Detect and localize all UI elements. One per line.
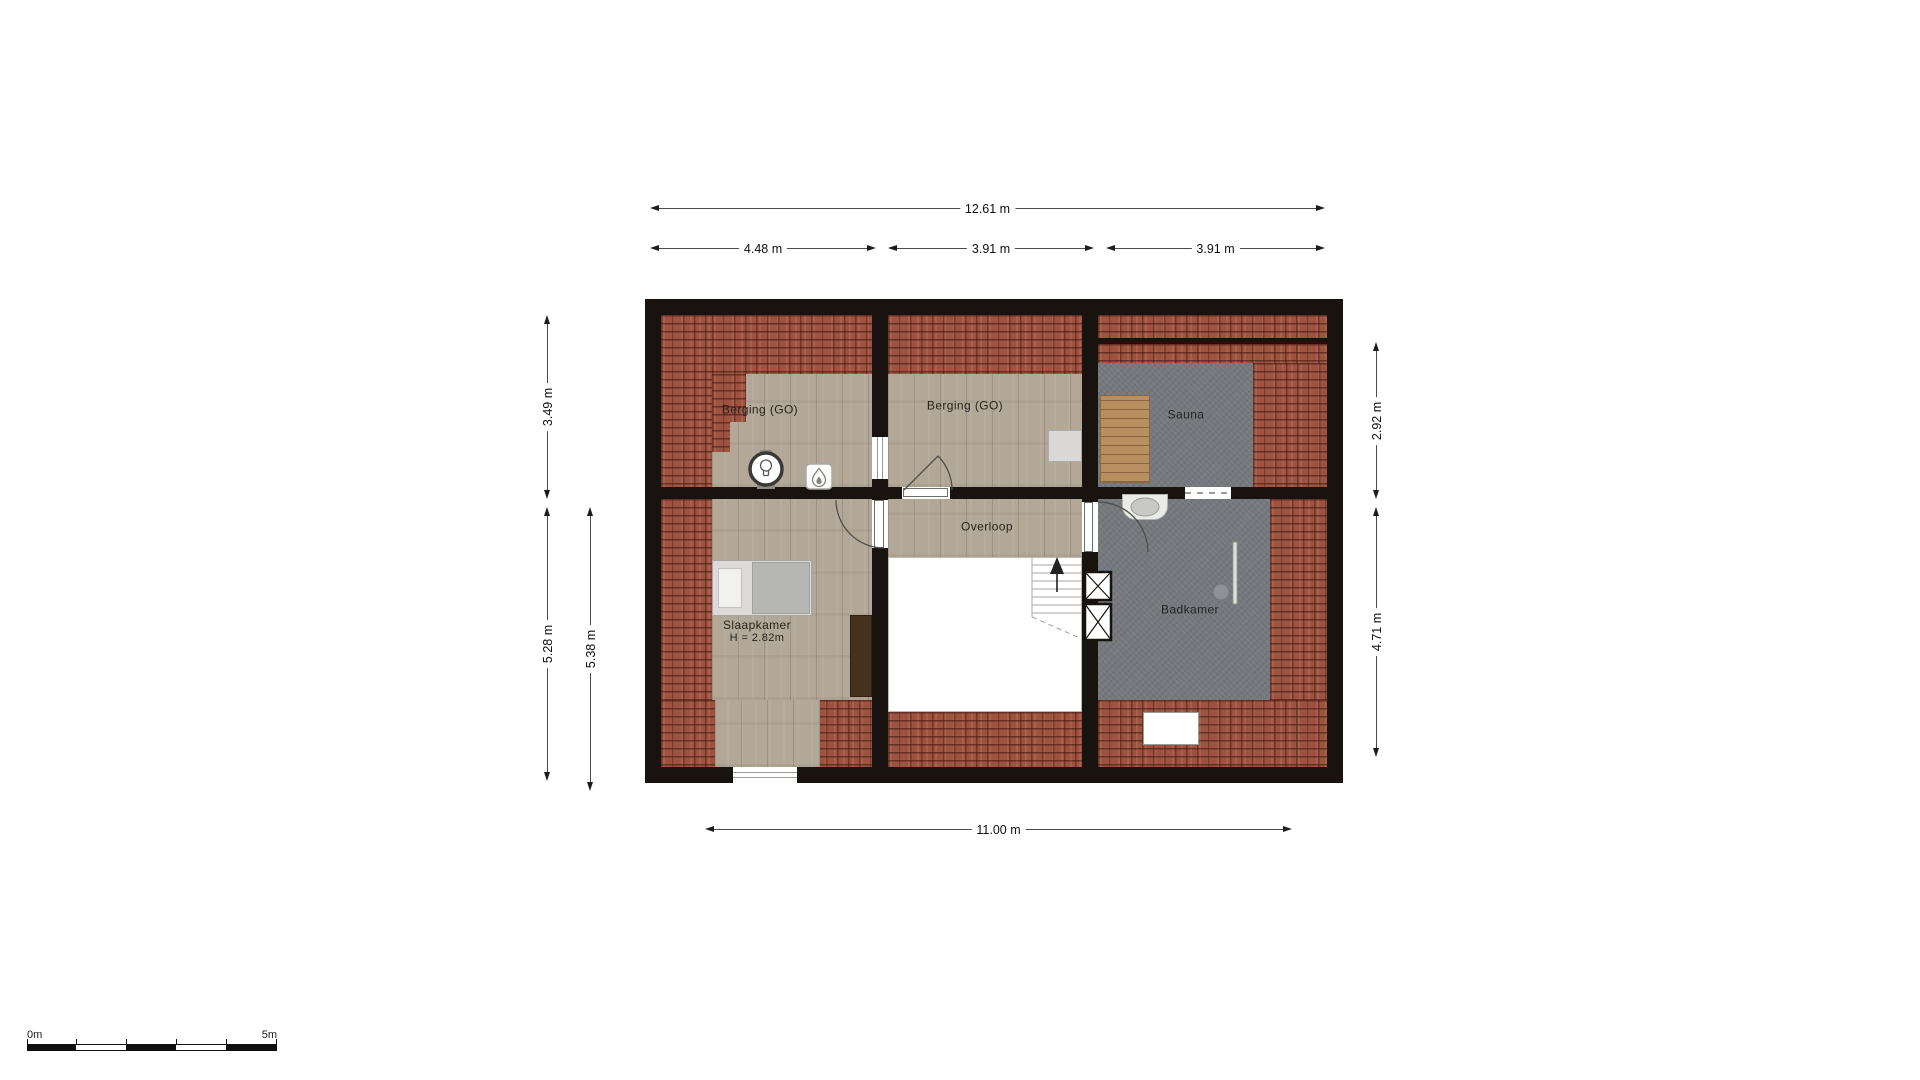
sauna-bench bbox=[1100, 395, 1150, 483]
window-dormer-badkamer bbox=[1143, 712, 1199, 745]
dim-right-1: 2.92 m bbox=[1370, 342, 1383, 499]
room-label-slaapkamer-name: Slaapkamer bbox=[723, 619, 791, 632]
roof-tiles-top-right-2 bbox=[1098, 344, 1327, 363]
room-label-berging-left: Berging (GO) bbox=[722, 404, 798, 417]
wardrobe bbox=[850, 615, 872, 697]
room-label-berging-mid: Berging (GO) bbox=[927, 400, 1003, 413]
wall-outer-right bbox=[1327, 299, 1343, 783]
dim-left-1: 3.49 m bbox=[541, 315, 554, 499]
bed-pillow bbox=[718, 568, 742, 608]
floor-badkamer bbox=[1098, 499, 1270, 700]
knee-wall-right-section bbox=[1098, 338, 1327, 344]
dim-left-3: 5.38 m bbox=[584, 507, 597, 791]
room-label-slaapkamer-height: H = 2.82m bbox=[723, 632, 791, 645]
cabinet-berging-mid bbox=[1048, 430, 1082, 462]
scale-bar-start-label: 0m bbox=[27, 1029, 42, 1041]
door-leaf-slaapkamer bbox=[874, 500, 884, 548]
roof-tiles-right-of-badkamer bbox=[1270, 499, 1327, 700]
room-label-slaapkamer: Slaapkamer H = 2.82m bbox=[723, 619, 791, 645]
roof-tiles-bottom-right bbox=[1098, 700, 1327, 767]
roof-tiles-bottom-middle bbox=[888, 712, 1082, 767]
scale-bar: 0m 5m bbox=[27, 1029, 277, 1053]
dim-left-2: 5.28 m bbox=[541, 507, 554, 781]
room-label-sauna: Sauna bbox=[1168, 409, 1205, 422]
dim-top-seg-1: 4.48 m bbox=[650, 242, 876, 255]
washbasin-counter bbox=[1122, 494, 1168, 520]
wall-outer-left bbox=[645, 299, 661, 783]
scale-bar-end-label: 5m bbox=[262, 1029, 277, 1041]
door-leaf-overloop-berging bbox=[903, 488, 948, 497]
floorplan-canvas: Berging (GO) Berging (GO) Sauna Overloop… bbox=[0, 0, 1920, 1080]
door-leaf-badkamer bbox=[1084, 502, 1093, 552]
roof-tiles-right-of-sauna bbox=[1253, 363, 1327, 487]
bed-mattress bbox=[752, 562, 810, 614]
window-dormer-slaapkamer bbox=[733, 767, 797, 783]
roof-tiles-top-left bbox=[712, 315, 872, 374]
dim-top-seg-3: 3.91 m bbox=[1106, 242, 1325, 255]
dim-top-total: 12.61 m bbox=[650, 202, 1325, 215]
dim-top-seg-2: 3.91 m bbox=[888, 242, 1094, 255]
dim-bottom: 11.00 m bbox=[705, 823, 1292, 836]
floor-dormer-strip bbox=[715, 700, 820, 767]
dim-right-2: 4.71 m bbox=[1370, 507, 1383, 757]
scale-bar-line bbox=[27, 1044, 277, 1051]
roof-tiles-top-right-1 bbox=[1098, 315, 1327, 338]
wall-outer-top bbox=[645, 299, 1343, 315]
room-label-overloop: Overloop bbox=[961, 521, 1013, 534]
sauna-glass-door bbox=[1185, 487, 1231, 499]
room-label-badkamer: Badkamer bbox=[1161, 604, 1219, 617]
stair-void bbox=[888, 557, 1082, 712]
roof-tiles-step-2 bbox=[712, 422, 730, 452]
window-between-bergings bbox=[872, 437, 888, 479]
roof-tiles-top-middle bbox=[888, 315, 1082, 374]
